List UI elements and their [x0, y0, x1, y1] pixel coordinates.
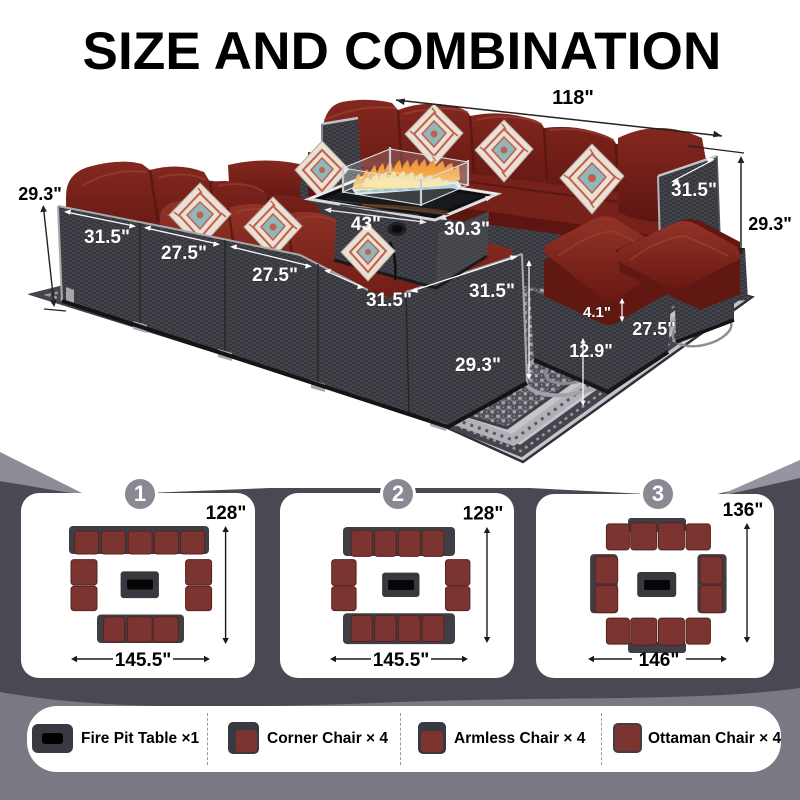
svg-text:43": 43" — [351, 214, 381, 235]
svg-text:136": 136" — [723, 500, 764, 521]
svg-text:146": 146" — [639, 650, 680, 671]
svg-text:31.5": 31.5" — [84, 227, 130, 248]
svg-text:29.3": 29.3" — [748, 214, 792, 234]
svg-text:29.3": 29.3" — [455, 355, 501, 376]
svg-text:12.9": 12.9" — [569, 341, 613, 361]
svg-text:4.1": 4.1" — [583, 304, 611, 321]
svg-text:27.5": 27.5" — [252, 265, 298, 286]
svg-text:31.5": 31.5" — [469, 281, 515, 302]
svg-text:27.5": 27.5" — [632, 319, 676, 339]
svg-text:30.3": 30.3" — [444, 219, 490, 240]
svg-text:118": 118" — [552, 87, 594, 109]
svg-text:128": 128" — [206, 503, 247, 524]
svg-text:31.5": 31.5" — [366, 290, 412, 311]
svg-text:128": 128" — [463, 504, 504, 525]
svg-text:145.5": 145.5" — [373, 650, 430, 671]
svg-text:27.5": 27.5" — [161, 243, 207, 264]
svg-text:145.5": 145.5" — [115, 650, 172, 671]
svg-text:29.3": 29.3" — [18, 184, 62, 204]
